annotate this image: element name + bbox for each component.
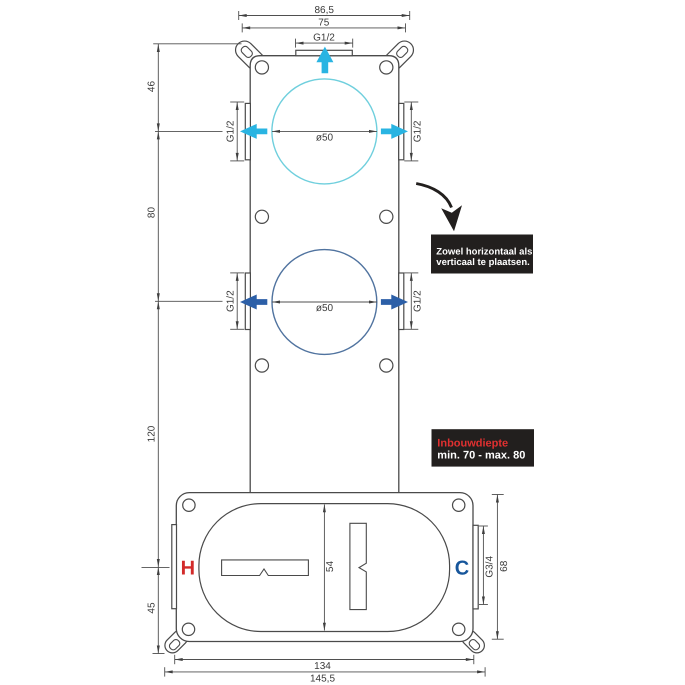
svg-text:Inbouwdiepte: Inbouwdiepte xyxy=(437,437,508,449)
svg-text:G1/2: G1/2 xyxy=(412,290,423,312)
svg-text:ø50: ø50 xyxy=(316,133,334,144)
svg-text:G3/4: G3/4 xyxy=(484,556,495,578)
svg-text:G1/2: G1/2 xyxy=(412,120,423,142)
svg-text:45: 45 xyxy=(146,602,157,614)
svg-text:G1/2: G1/2 xyxy=(225,290,236,312)
svg-text:min. 70 - max. 80: min. 70 - max. 80 xyxy=(437,450,525,462)
svg-text:H: H xyxy=(181,558,195,580)
svg-text:68: 68 xyxy=(499,560,510,572)
svg-text:120: 120 xyxy=(146,425,157,442)
svg-text:ø50: ø50 xyxy=(316,303,334,314)
svg-text:54: 54 xyxy=(325,561,336,573)
svg-text:G1/2: G1/2 xyxy=(313,32,335,43)
svg-text:86,5: 86,5 xyxy=(314,5,334,16)
svg-text:80: 80 xyxy=(146,207,157,219)
svg-text:75: 75 xyxy=(318,17,330,28)
svg-text:Zowel horizontaal als: Zowel horizontaal als xyxy=(436,247,532,258)
svg-text:46: 46 xyxy=(146,81,157,93)
svg-text:verticaal te plaatsen.: verticaal te plaatsen. xyxy=(436,257,529,268)
svg-text:145,5: 145,5 xyxy=(310,673,335,684)
svg-text:134: 134 xyxy=(314,661,331,672)
svg-text:G1/2: G1/2 xyxy=(225,120,236,142)
svg-text:C: C xyxy=(455,558,469,580)
